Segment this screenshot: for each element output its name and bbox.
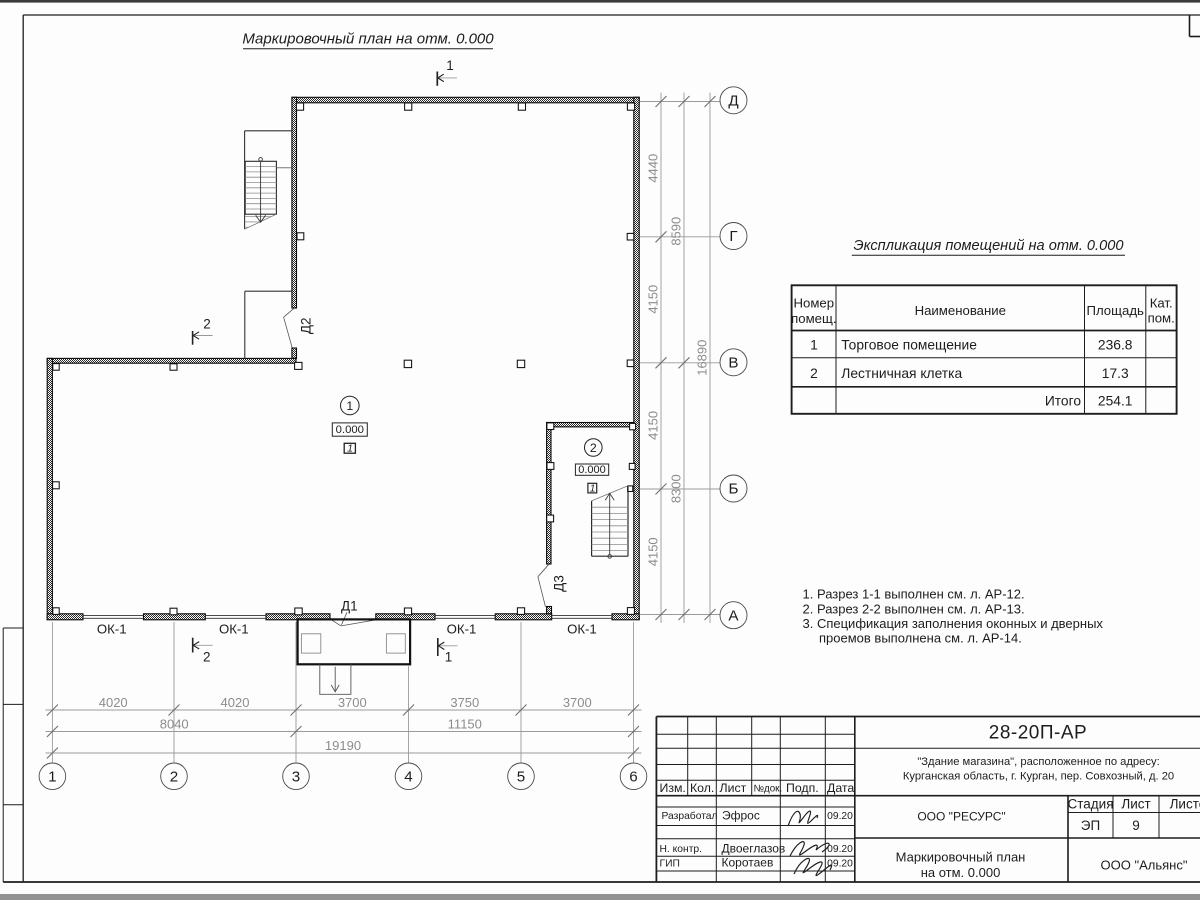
svg-text:4150: 4150 bbox=[646, 537, 661, 566]
svg-text:2: 2 bbox=[810, 366, 818, 381]
svg-text:Дата: Дата bbox=[827, 781, 854, 795]
svg-text:4: 4 bbox=[404, 768, 412, 785]
svg-text:4440: 4440 bbox=[646, 154, 661, 183]
svg-text:на отм. 0.000: на отм. 0.000 bbox=[921, 865, 1001, 880]
svg-text:3. Спецификация заполнения око: 3. Спецификация заполнения оконных и две… bbox=[803, 616, 1104, 631]
svg-text:1: 1 bbox=[810, 337, 818, 352]
svg-text:Наименование: Наименование bbox=[915, 303, 1006, 318]
svg-text:1: 1 bbox=[346, 399, 353, 413]
svg-text:2. Разрез 2-2 выполнен см. л.: 2. Разрез 2-2 выполнен см. л. АР-13. bbox=[803, 601, 1025, 616]
svg-text:Г: Г bbox=[729, 228, 737, 245]
svg-text:Лестничная клетка: Лестничная клетка bbox=[841, 366, 962, 381]
svg-text:0.000: 0.000 bbox=[578, 464, 606, 476]
svg-text:4150: 4150 bbox=[646, 411, 661, 440]
svg-text:ЭП: ЭП bbox=[1081, 818, 1100, 833]
svg-text:28-20П-АР: 28-20П-АР bbox=[989, 723, 1087, 744]
svg-text:236.8: 236.8 bbox=[1098, 337, 1133, 352]
svg-text:2: 2 bbox=[203, 649, 211, 664]
svg-text:4150: 4150 bbox=[646, 285, 661, 314]
svg-text:3700: 3700 bbox=[563, 695, 592, 710]
svg-text:3700: 3700 bbox=[338, 695, 367, 710]
svg-text:8300: 8300 bbox=[669, 474, 684, 503]
svg-text:Д1: Д1 bbox=[341, 599, 358, 614]
svg-text:19190: 19190 bbox=[325, 738, 361, 753]
svg-text:8040: 8040 bbox=[160, 717, 189, 732]
svg-text:Н. контр.: Н. контр. bbox=[660, 844, 703, 855]
svg-text:Площадь: Площадь bbox=[1086, 303, 1144, 318]
svg-text:9: 9 bbox=[1132, 818, 1140, 833]
svg-text:Стадия: Стадия bbox=[1067, 797, 1113, 812]
svg-text:Д: Д bbox=[728, 93, 738, 110]
svg-text:Экспликация помещений на отм.: Экспликация помещений на отм. 0.000 bbox=[854, 238, 1124, 254]
svg-text:11150: 11150 bbox=[448, 717, 482, 732]
svg-text:Двоеглазов: Двоеглазов bbox=[722, 842, 786, 856]
svg-text:Изм.: Изм. bbox=[660, 781, 686, 795]
svg-text:Маркировочный план: Маркировочный план bbox=[896, 850, 1026, 865]
svg-text:Кат.: Кат. bbox=[1150, 295, 1173, 310]
svg-text:ООО "РЕСУРС": ООО "РЕСУРС" bbox=[917, 810, 1005, 824]
svg-text:5: 5 bbox=[517, 768, 525, 785]
svg-text:Кол.: Кол. bbox=[690, 781, 714, 795]
svg-text:проемов выполнена см. л. АР-14: проемов выполнена см. л. АР-14. bbox=[819, 631, 1022, 646]
svg-text:Маркировочный план на отм. 0.0: Маркировочный план на отм. 0.000 bbox=[242, 31, 494, 48]
svg-text:4020: 4020 bbox=[221, 695, 250, 710]
svg-text:Коротаев: Коротаев bbox=[722, 856, 774, 870]
svg-text:6: 6 bbox=[629, 768, 637, 785]
svg-text:пом.: пом. bbox=[1148, 311, 1175, 326]
svg-text:3: 3 bbox=[292, 768, 300, 785]
svg-text:Б: Б bbox=[729, 481, 739, 498]
svg-text:Номер: Номер bbox=[794, 295, 835, 310]
svg-text:Д2: Д2 bbox=[299, 317, 314, 334]
svg-text:Подп.: Подп. bbox=[786, 781, 819, 795]
svg-text:16890: 16890 bbox=[695, 340, 710, 376]
svg-text:1: 1 bbox=[48, 769, 56, 786]
svg-text:Торговое помещение: Торговое помещение bbox=[841, 337, 977, 352]
svg-text:Листов: Листов bbox=[1170, 797, 1200, 812]
svg-text:1: 1 bbox=[446, 58, 454, 73]
svg-text:254.1: 254.1 bbox=[1098, 394, 1133, 409]
svg-text:ОК-1: ОК-1 bbox=[567, 621, 597, 636]
svg-text:Разработал: Разработал bbox=[662, 810, 718, 822]
svg-text:ОК-1: ОК-1 bbox=[219, 621, 249, 636]
svg-text:1. Разрез 1-1 выполнен см. л.: 1. Разрез 1-1 выполнен см. л. АР-12. bbox=[803, 587, 1025, 602]
svg-text:ОК-1: ОК-1 bbox=[97, 621, 127, 636]
svg-text:В: В bbox=[728, 354, 738, 371]
svg-text:0.000: 0.000 bbox=[336, 424, 364, 436]
svg-text:09.20: 09.20 bbox=[827, 811, 853, 822]
svg-text:Итого: Итого bbox=[1045, 394, 1081, 409]
svg-text:ООО "Альянс": ООО "Альянс" bbox=[1101, 858, 1188, 873]
svg-text:Д3: Д3 bbox=[552, 575, 567, 592]
svg-text:2: 2 bbox=[170, 768, 178, 785]
svg-text:помещ.: помещ. bbox=[791, 311, 836, 326]
svg-text:"Здание магазина", расположенн: "Здание магазина", расположенное по адре… bbox=[917, 756, 1159, 768]
svg-text:№док.: №док. bbox=[754, 784, 783, 795]
svg-text:Лист: Лист bbox=[1121, 797, 1150, 812]
svg-text:17.3: 17.3 bbox=[1102, 366, 1129, 381]
svg-text:1: 1 bbox=[590, 483, 596, 494]
svg-text:2: 2 bbox=[203, 316, 211, 331]
svg-text:1: 1 bbox=[445, 649, 453, 664]
svg-text:1: 1 bbox=[347, 443, 353, 455]
svg-text:ОК-1: ОК-1 bbox=[447, 621, 477, 636]
svg-text:А: А bbox=[728, 607, 739, 624]
svg-text:Лист: Лист bbox=[720, 781, 747, 795]
svg-text:2: 2 bbox=[590, 441, 597, 455]
svg-text:09.20: 09.20 bbox=[827, 844, 853, 855]
svg-text:8590: 8590 bbox=[669, 217, 684, 246]
svg-text:ГИП: ГИП bbox=[660, 859, 680, 870]
svg-text:4020: 4020 bbox=[99, 695, 128, 710]
svg-text:3750: 3750 bbox=[450, 695, 479, 710]
svg-text:Эфрос: Эфрос bbox=[722, 809, 760, 823]
svg-text:Курганская область, г. Курган,: Курганская область, г. Курган, пер. Совх… bbox=[903, 771, 1174, 783]
